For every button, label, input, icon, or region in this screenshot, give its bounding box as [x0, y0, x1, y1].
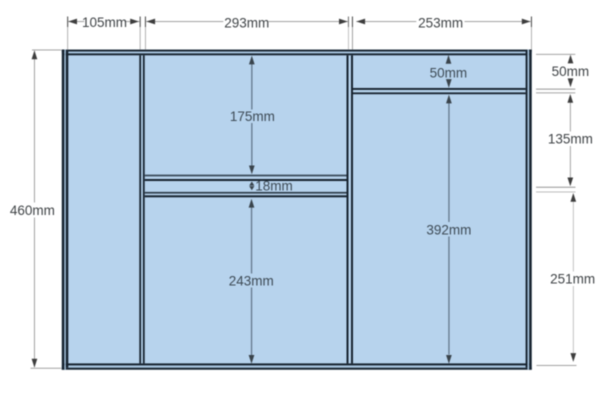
svg-text:392mm: 392mm [426, 223, 471, 238]
svg-text:251mm: 251mm [550, 272, 595, 287]
svg-text:18mm: 18mm [255, 178, 293, 193]
svg-text:50mm: 50mm [552, 64, 590, 79]
svg-text:253mm: 253mm [418, 15, 463, 30]
svg-text:460mm: 460mm [10, 203, 55, 218]
svg-text:105mm: 105mm [82, 15, 127, 30]
svg-text:243mm: 243mm [229, 273, 274, 288]
svg-text:50mm: 50mm [430, 66, 468, 81]
svg-text:293mm: 293mm [224, 15, 269, 30]
svg-text:175mm: 175mm [230, 109, 275, 124]
svg-text:135mm: 135mm [548, 132, 593, 147]
